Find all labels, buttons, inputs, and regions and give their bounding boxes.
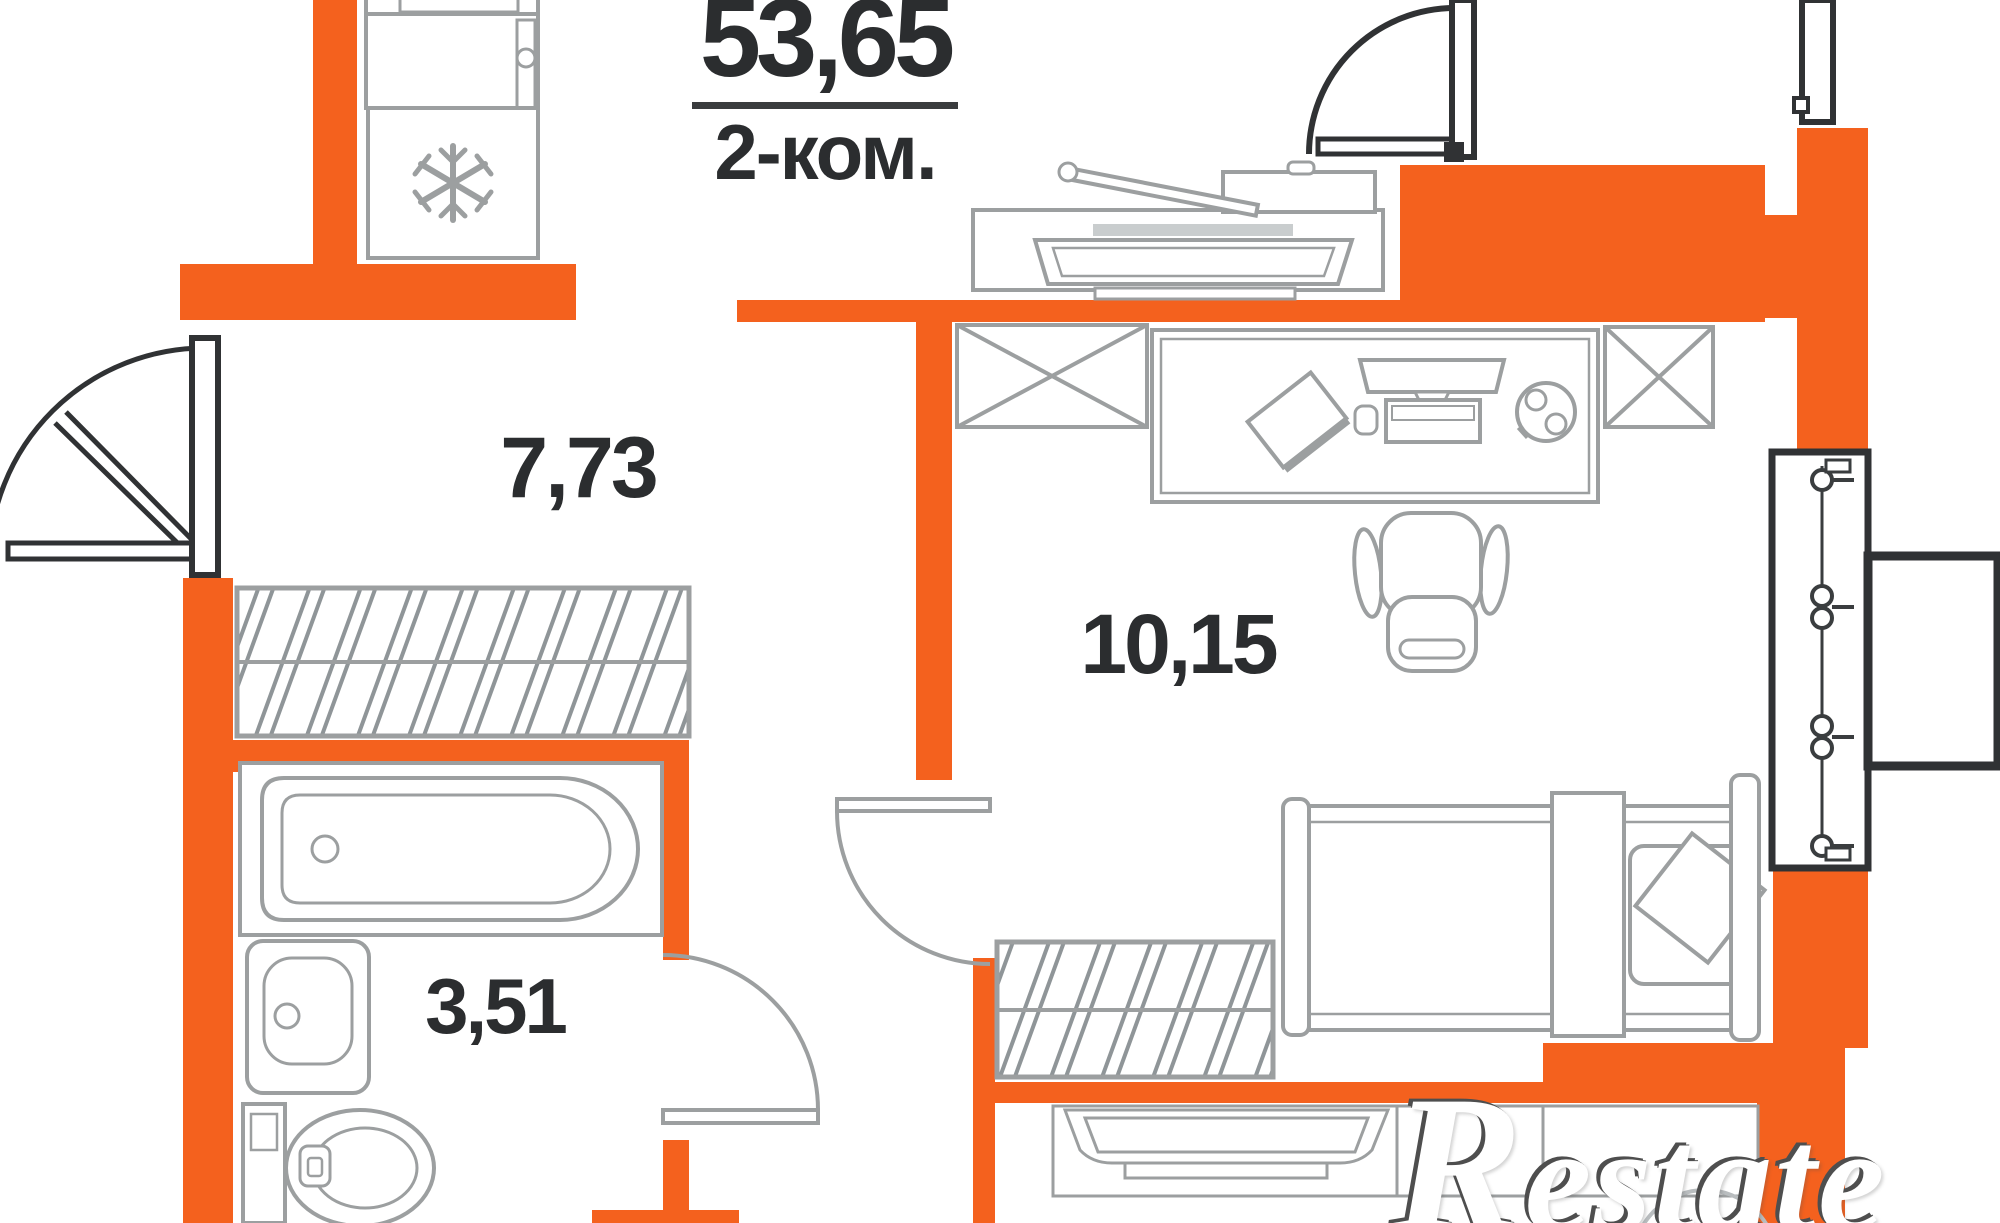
- hatched-wardrobe-icon: [237, 588, 689, 736]
- mouse-icon: [1355, 406, 1377, 434]
- keyboard-icon: [1386, 400, 1480, 442]
- faucet-icon: [275, 1004, 299, 1028]
- plan-header: 53,65 2-ком.: [690, 0, 960, 191]
- living-room-door-icon: [837, 799, 990, 964]
- kitchen-counter-icon: [366, 0, 538, 108]
- unit-type-label: 2-ком.: [690, 113, 960, 191]
- wall-living-top: [737, 300, 1417, 322]
- crossed-wardrobe-icon: [957, 325, 1147, 427]
- wall-right-lower: [1773, 868, 1868, 1048]
- wall-top-right-block: [1400, 165, 1765, 322]
- wall-left-outer: [183, 578, 233, 1223]
- office-chair-icon: [1350, 513, 1511, 671]
- floor-plan: 53,65 2-ком. 7,73 10,15 3,51 Restate: [0, 0, 2000, 1223]
- room-area-label-hallway: 7,73: [488, 425, 668, 511]
- wall-kitchen-bottom: [180, 264, 576, 320]
- bed-footboard-icon: [1283, 799, 1309, 1035]
- bay-window-icon: [1868, 556, 1998, 766]
- wall-hall-living-divider: [916, 318, 952, 780]
- washbasin-icon: [247, 941, 369, 1093]
- bathtub-icon: [240, 763, 662, 935]
- monitor-icon: [1360, 360, 1504, 392]
- wall-bottom-stub: [592, 1210, 739, 1223]
- total-area-label: 53,65: [690, 0, 960, 94]
- blanket-fold-icon: [1552, 793, 1624, 1036]
- window-icon: [1772, 452, 1868, 868]
- bathroom-door-icon: [663, 955, 818, 1123]
- floor-plan-drawing: [0, 0, 2000, 1223]
- room-area-label-living: 10,15: [1078, 602, 1278, 686]
- chair-seat-icon: [1388, 597, 1476, 671]
- radiator-icon: [997, 942, 1273, 1077]
- desk-icon: [1152, 330, 1598, 502]
- watermark-logo: Restate: [1392, 1072, 2000, 1223]
- wall-kitchen-left: [313, 0, 357, 268]
- balcony-door-icon: [1309, 0, 1474, 162]
- sideboard-open-lid-icon: [973, 162, 1383, 299]
- stove-knob-icon: [517, 49, 535, 67]
- wall-hall-living-lower: [973, 958, 995, 1223]
- bathtub-drain-icon: [312, 836, 338, 862]
- bed-icon: [1283, 775, 1765, 1040]
- fridge-icon: [368, 108, 538, 258]
- kitchen-sink-icon: [400, 0, 518, 12]
- crossed-wardrobe-icon: [1605, 327, 1713, 427]
- wall-bath-right: [663, 740, 689, 960]
- window-icon: [1794, 0, 1833, 122]
- wall-right-upper: [1797, 128, 1868, 450]
- toilet-icon: [243, 1104, 434, 1223]
- entrance-door-icon: [0, 338, 218, 575]
- bed-headboard-icon: [1731, 775, 1759, 1040]
- tv-icon: [1065, 1110, 1388, 1178]
- room-area-label-bathroom: 3,51: [410, 967, 580, 1045]
